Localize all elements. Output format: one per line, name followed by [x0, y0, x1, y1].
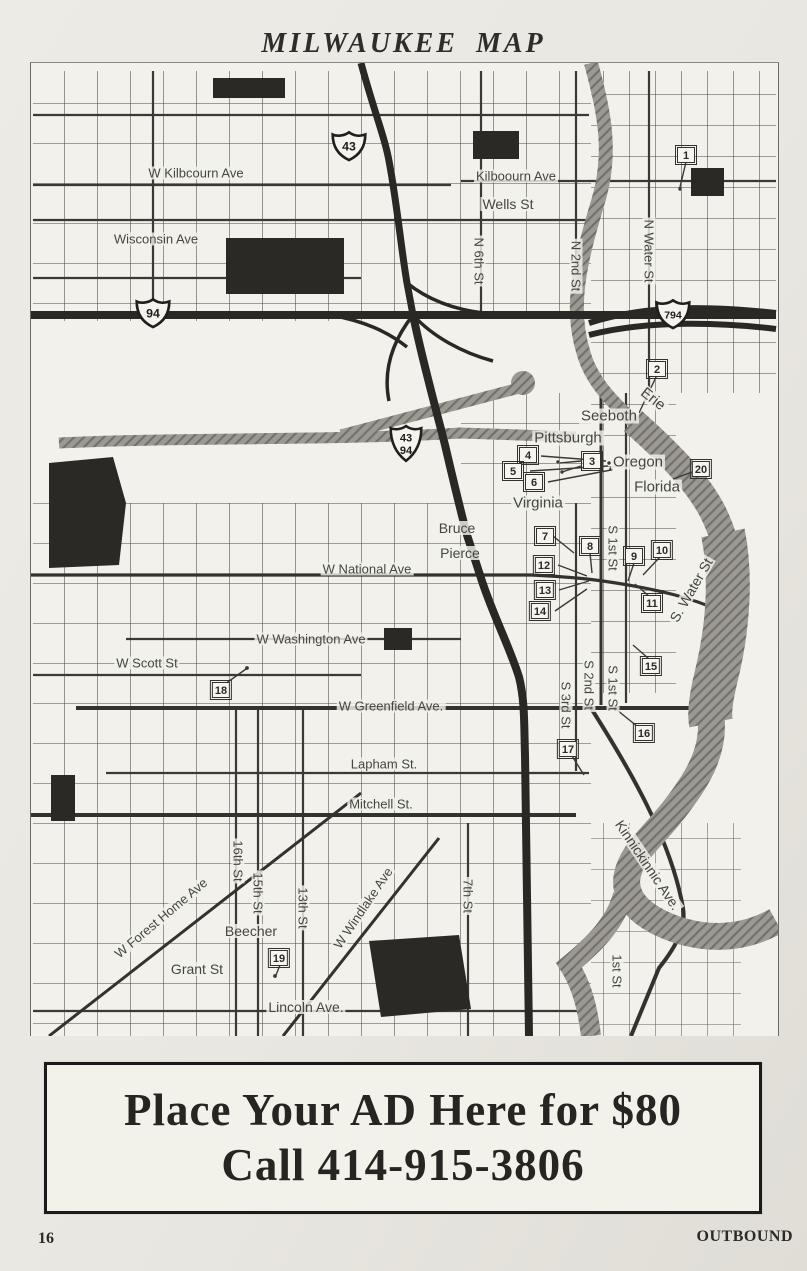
- page-title: MILWAUKEE MAP: [0, 28, 807, 60]
- street-label-lapham-st-: Lapham St.: [349, 758, 420, 771]
- map-marker-19: 19: [270, 950, 288, 966]
- interstate-shield-43-94: 4394: [389, 423, 423, 463]
- street-label-lincoln-ave-: Lincoln Ave.: [266, 1000, 345, 1014]
- map-marker-17: 17: [559, 741, 577, 757]
- street-label-mitchell-st-: Mitchell St.: [347, 798, 415, 811]
- ad-line-2: Call 414-915-3806: [221, 1142, 584, 1189]
- street-label-n-water-st: N Water St: [643, 217, 656, 284]
- street-label-florida: Florida: [632, 480, 682, 495]
- street-label-kilboourn-ave: Kilboourn Ave: [474, 170, 558, 183]
- interstate-shield-94: 94: [135, 297, 172, 329]
- map-marker-3: 3: [583, 453, 601, 469]
- street-label-w-washington-ave: W Washington Ave: [254, 633, 367, 646]
- street-label-13th-st: 13th St: [297, 885, 310, 930]
- map-marker-9: 9: [625, 548, 643, 564]
- footer-outbound: OUTBOUND: [697, 1228, 793, 1246]
- ad-line-1: Place Your AD Here for $80: [124, 1087, 682, 1134]
- map-marker-12: 12: [535, 557, 553, 573]
- map-marker-4: 4: [519, 447, 537, 463]
- street-label-w-greenfield-ave-: W Greenfield Ave.: [337, 700, 446, 713]
- map-marker-13: 13: [536, 582, 554, 598]
- street-label-n-2nd-st: N 2nd St: [570, 239, 583, 294]
- svg-text:94: 94: [400, 445, 413, 457]
- map-marker-8: 8: [581, 538, 599, 554]
- street-label-w-national-ave: W National Ave: [321, 563, 414, 576]
- street-label-wisconsin-ave: Wisconsin Ave: [112, 233, 200, 246]
- street-label-s-2nd-st: S 2nd St: [583, 658, 596, 712]
- map-marker-20: 20: [692, 461, 710, 477]
- street-label-s-1st-st: S 1st St: [607, 663, 620, 713]
- ad-box: Place Your AD Here for $80 Call 414-915-…: [44, 1062, 762, 1214]
- street-label-pittsburgh: Pittsburgh: [532, 431, 604, 446]
- svg-text:43: 43: [400, 432, 412, 444]
- page-number: 16: [38, 1230, 54, 1248]
- street-label-16th-st: 16th St: [232, 838, 245, 883]
- street-label-s-3rd-st: S 3rd St: [560, 680, 573, 731]
- interstate-shield-794: 794: [655, 298, 692, 330]
- street-label-n-6th-st: N 6th St: [473, 236, 486, 287]
- street-label-virginia: Virginia: [511, 496, 565, 511]
- map-marker-7: 7: [536, 528, 554, 544]
- map-marker-11: 11: [643, 595, 661, 611]
- street-label-15th-st: 15th St: [252, 870, 265, 915]
- street-label-oregon: Oregon: [611, 455, 665, 470]
- map-marker-2: 2: [648, 361, 666, 377]
- street-label-pierce: Pierce: [438, 546, 482, 560]
- svg-text:794: 794: [664, 309, 682, 321]
- interstate-shield-43: 43: [331, 130, 368, 162]
- map-marker-14: 14: [531, 603, 549, 619]
- street-label-1st-st: 1st St: [611, 952, 624, 989]
- map-marker-10: 10: [653, 542, 671, 558]
- svg-text:94: 94: [146, 306, 160, 320]
- map-marker-6: 6: [525, 474, 543, 490]
- street-label-beecher: Beecher: [223, 924, 279, 938]
- street-label-7th-st: 7th St: [462, 877, 475, 915]
- map-marker-16: 16: [635, 725, 653, 741]
- svg-text:43: 43: [342, 139, 356, 153]
- street-label-bruce: Bruce: [437, 521, 478, 535]
- map-marker-15: 15: [642, 658, 660, 674]
- street-label-grant-st: Grant St: [169, 962, 225, 976]
- map-marker-1: 1: [677, 147, 695, 163]
- street-label-w-scott-st: W Scott St: [114, 657, 179, 670]
- street-label-seeboth: Seeboth: [579, 409, 639, 424]
- street-label-s-1st-st: S 1st St: [607, 523, 620, 573]
- street-label-w-kilbcourn-ave: W Kilbcourn Ave: [146, 167, 245, 180]
- map-marker-18: 18: [212, 682, 230, 698]
- milwaukee-map: W Kilbcourn AveWisconsin AveKilboourn Av…: [30, 62, 779, 1036]
- map-marker-5: 5: [504, 463, 522, 479]
- street-label-wells-st: Wells St: [480, 197, 535, 211]
